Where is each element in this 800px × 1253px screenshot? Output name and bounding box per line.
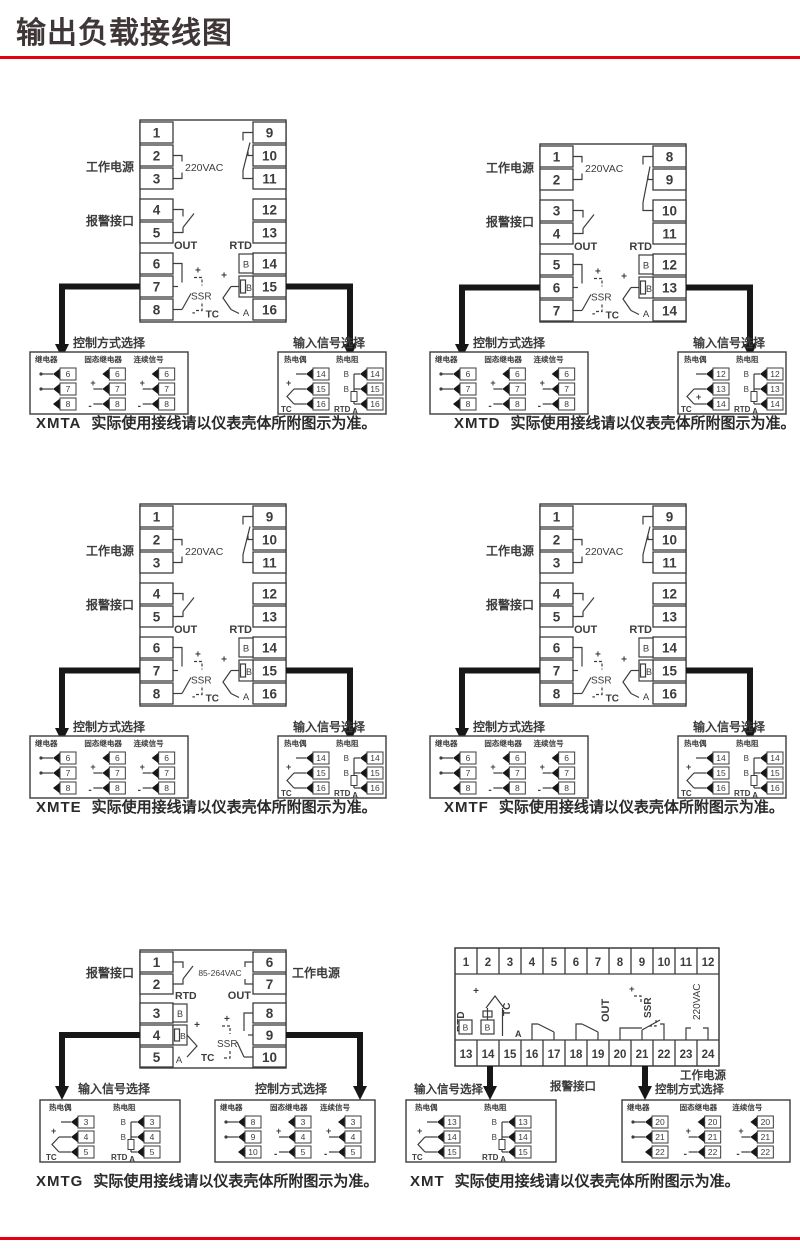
svg-text:+: +: [224, 1014, 230, 1025]
model-label: XMTD: [454, 415, 501, 432]
svg-text:B: B: [246, 667, 252, 677]
svg-text:1: 1: [553, 150, 561, 165]
svg-text:SSR: SSR: [591, 293, 612, 304]
svg-text:报警接口: 报警接口: [86, 965, 134, 980]
svg-text:7: 7: [515, 768, 520, 778]
svg-text:+: +: [90, 762, 95, 772]
svg-text:OUT: OUT: [174, 624, 198, 636]
svg-text:+: +: [490, 762, 495, 772]
svg-text:13: 13: [662, 281, 678, 296]
svg-text:12: 12: [662, 258, 677, 273]
xmtd-wiring-diagram: 1829310411512613714工作电源报警接口220VACOUT+SSR…: [428, 108, 798, 438]
svg-text:15: 15: [662, 664, 678, 679]
svg-text:2: 2: [153, 977, 161, 992]
svg-text:RTD: RTD: [629, 624, 652, 636]
svg-text:16: 16: [316, 783, 326, 793]
svg-text:输入信号选择: 输入信号选择: [78, 1081, 151, 1096]
svg-text:B: B: [243, 644, 249, 655]
svg-text:+: +: [738, 1126, 743, 1136]
svg-text:5: 5: [553, 610, 561, 625]
svg-text:15: 15: [262, 664, 278, 679]
svg-text:热电阻: 热电阻: [736, 738, 759, 748]
svg-text:5: 5: [153, 1050, 161, 1065]
svg-text:6: 6: [515, 369, 520, 379]
svg-text:85-264VAC: 85-264VAC: [198, 968, 241, 978]
xmte-diagram-svg: 19210311412513614715816工作电源报警接口220VACOUT…: [28, 492, 398, 802]
svg-text:13: 13: [518, 1117, 528, 1127]
svg-text:14: 14: [482, 1049, 495, 1061]
svg-text:3: 3: [153, 556, 161, 571]
svg-text:+: +: [286, 762, 291, 772]
svg-text:7: 7: [115, 768, 120, 778]
svg-text:8: 8: [153, 687, 161, 702]
svg-text:11: 11: [662, 556, 677, 571]
svg-text:连续信号: 连续信号: [134, 354, 164, 364]
svg-text:9: 9: [266, 126, 274, 141]
xmtd-caption: XMTD实际使用接线请以仪表壳体所附图示为准。: [454, 412, 796, 433]
svg-text:TC: TC: [606, 694, 619, 705]
svg-text:11: 11: [262, 172, 277, 187]
svg-text:继电器: 继电器: [35, 354, 58, 364]
svg-text:15: 15: [447, 1147, 457, 1157]
svg-text:8: 8: [515, 399, 520, 409]
svg-text:TC: TC: [206, 310, 219, 321]
svg-text:A: A: [129, 1155, 135, 1164]
svg-text:4: 4: [553, 587, 561, 602]
svg-text:2: 2: [553, 533, 561, 548]
xmtd-diagram-svg: 1829310411512613714工作电源报警接口220VACOUT+SSR…: [428, 108, 798, 418]
svg-text:6: 6: [66, 753, 71, 763]
svg-text:14: 14: [370, 753, 380, 763]
svg-text:B: B: [121, 1118, 126, 1127]
svg-text:RTD: RTD: [482, 1153, 499, 1162]
svg-text:TC: TC: [46, 1153, 57, 1162]
svg-text:+: +: [696, 392, 701, 402]
xmta-caption: XMTA实际使用接线请以仪表壳体所附图示为准。: [36, 412, 376, 433]
svg-text:B: B: [344, 769, 349, 778]
svg-text:热电偶: 热电偶: [684, 354, 707, 364]
svg-text:3: 3: [351, 1117, 356, 1127]
svg-text:12: 12: [262, 203, 277, 218]
svg-text:A: A: [515, 1029, 522, 1039]
svg-text:11: 11: [662, 227, 677, 242]
xmtg-wiring-diagram: 16273849510报警接口RTDBBA+TC85-264VAC工作电源OUT…: [28, 940, 398, 1200]
svg-text:3: 3: [507, 957, 513, 969]
svg-text:-: -: [592, 309, 595, 320]
svg-text:22: 22: [761, 1147, 771, 1157]
svg-text:9: 9: [639, 957, 645, 969]
svg-text:B: B: [643, 261, 649, 272]
svg-text:连续信号: 连续信号: [534, 738, 564, 748]
svg-text:8: 8: [564, 783, 569, 793]
model-label: XMTE: [36, 799, 82, 816]
svg-text:8: 8: [66, 783, 71, 793]
svg-text:15: 15: [316, 384, 326, 394]
xmt-wiring-diagram: 113214315416517618719820921102211231224R…: [398, 940, 798, 1200]
svg-text:+: +: [194, 1020, 200, 1031]
svg-text:10: 10: [262, 533, 277, 548]
svg-text:-: -: [736, 1149, 739, 1160]
svg-text:7: 7: [564, 384, 569, 394]
svg-text:23: 23: [680, 1049, 693, 1061]
svg-text:控制方式选择: 控制方式选择: [73, 719, 146, 734]
svg-text:21: 21: [708, 1132, 718, 1142]
svg-text:固态继电器: 固态继电器: [84, 354, 122, 364]
svg-text:工作电源: 工作电源: [292, 965, 340, 980]
svg-text:SSR: SSR: [217, 1039, 238, 1050]
svg-text:1: 1: [153, 126, 161, 141]
svg-text:6: 6: [466, 369, 471, 379]
svg-text:2: 2: [553, 173, 561, 188]
xmt-diagram-svg: 113214315416517618719820921102211231224R…: [398, 940, 798, 1180]
svg-text:15: 15: [770, 768, 780, 778]
svg-text:17: 17: [548, 1049, 561, 1061]
bottom-rule: [0, 1237, 800, 1240]
svg-text:16: 16: [662, 687, 678, 702]
svg-text:输入信号选择: 输入信号选择: [693, 719, 766, 734]
page-title: 输出负载接线图: [16, 8, 233, 52]
svg-text:8: 8: [266, 1006, 274, 1021]
svg-text:6: 6: [466, 753, 471, 763]
svg-text:10: 10: [658, 957, 671, 969]
svg-text:OUT: OUT: [574, 624, 598, 636]
svg-text:固态继电器: 固态继电器: [84, 738, 122, 748]
svg-text:1: 1: [153, 510, 161, 525]
svg-text:16: 16: [370, 783, 380, 793]
svg-text:B: B: [344, 385, 349, 394]
svg-text:+: +: [195, 650, 201, 661]
svg-text:OUT: OUT: [600, 999, 612, 1023]
svg-text:6: 6: [266, 955, 274, 970]
svg-text:5: 5: [153, 610, 161, 625]
svg-text:8: 8: [115, 783, 120, 793]
svg-text:7: 7: [553, 304, 561, 319]
svg-text:20: 20: [761, 1117, 771, 1127]
svg-text:1: 1: [553, 510, 561, 525]
svg-text:控制方式选择: 控制方式选择: [473, 335, 546, 350]
svg-text:8: 8: [515, 783, 520, 793]
svg-text:热电阻: 热电阻: [484, 1102, 507, 1112]
svg-text:6: 6: [66, 369, 71, 379]
svg-text:+: +: [326, 1126, 331, 1136]
svg-text:7: 7: [164, 768, 169, 778]
svg-text:15: 15: [316, 768, 326, 778]
svg-text:工作电源: 工作电源: [486, 160, 534, 175]
svg-text:-: -: [88, 785, 91, 796]
svg-text:3: 3: [553, 204, 561, 219]
svg-text:6: 6: [164, 753, 169, 763]
svg-text:6: 6: [553, 281, 561, 296]
svg-text:14: 14: [770, 399, 780, 409]
svg-text:A: A: [243, 308, 250, 319]
svg-text:12: 12: [702, 957, 715, 969]
svg-text:+: +: [221, 655, 227, 666]
svg-text:控制方式选择: 控制方式选择: [255, 1081, 328, 1096]
svg-text:4: 4: [351, 1132, 356, 1142]
svg-text:热电阻: 热电阻: [336, 738, 359, 748]
svg-text:14: 14: [316, 753, 326, 763]
svg-text:-: -: [274, 1149, 277, 1160]
svg-text:B: B: [744, 370, 749, 379]
xmtf-diagram-svg: 19210311412513614715816工作电源报警接口220VACOUT…: [428, 492, 798, 802]
svg-text:16: 16: [770, 783, 780, 793]
svg-text:2: 2: [153, 533, 161, 548]
svg-text:7: 7: [266, 977, 274, 992]
svg-text:6: 6: [553, 641, 561, 656]
svg-text:TC: TC: [502, 1003, 513, 1016]
svg-text:21: 21: [761, 1132, 771, 1142]
svg-text:控制方式选择: 控制方式选择: [655, 1082, 724, 1096]
svg-text:2: 2: [153, 149, 161, 164]
svg-text:B: B: [492, 1133, 497, 1142]
svg-text:3: 3: [84, 1117, 89, 1127]
svg-text:10: 10: [662, 204, 677, 219]
svg-text:14: 14: [316, 369, 326, 379]
svg-text:8: 8: [466, 783, 471, 793]
svg-text:+: +: [221, 271, 227, 282]
svg-text:热电偶: 热电偶: [684, 738, 707, 748]
svg-text:-: -: [192, 692, 195, 703]
svg-text:B: B: [177, 1009, 183, 1019]
svg-text:B: B: [643, 644, 649, 655]
svg-text:14: 14: [662, 304, 678, 319]
svg-text:14: 14: [262, 641, 278, 656]
svg-text:SSR: SSR: [191, 676, 212, 687]
svg-text:B: B: [646, 284, 652, 294]
svg-text:RTD: RTD: [175, 990, 197, 1002]
svg-text:+: +: [140, 762, 145, 772]
caption-text: 实际使用接线请以仪表壳体所附图示为准。: [455, 1173, 740, 1190]
svg-text:固态继电器: 固态继电器: [270, 1102, 308, 1112]
svg-text:7: 7: [153, 664, 161, 679]
svg-text:-: -: [88, 401, 91, 412]
svg-text:B: B: [344, 370, 349, 379]
svg-text:15: 15: [370, 384, 380, 394]
svg-text:报警接口: 报警接口: [86, 213, 134, 228]
svg-text:RTD: RTD: [229, 624, 252, 636]
svg-text:A: A: [643, 692, 650, 703]
svg-text:-: -: [592, 692, 595, 703]
svg-text:22: 22: [658, 1049, 671, 1061]
svg-text:4: 4: [84, 1132, 89, 1142]
svg-text:输入信号选择: 输入信号选择: [293, 719, 366, 734]
svg-text:14: 14: [518, 1132, 528, 1142]
svg-text:10: 10: [248, 1147, 258, 1157]
svg-text:输入信号选择: 输入信号选择: [293, 335, 366, 350]
svg-text:220VAC: 220VAC: [185, 546, 224, 558]
svg-text:B: B: [243, 260, 249, 271]
svg-text:热电偶: 热电偶: [49, 1102, 72, 1112]
svg-text:6: 6: [153, 257, 161, 272]
svg-text:B: B: [463, 1023, 469, 1033]
svg-text:热电阻: 热电阻: [336, 354, 359, 364]
svg-text:-: -: [538, 401, 541, 412]
svg-text:21: 21: [655, 1132, 665, 1142]
svg-text:A: A: [176, 1055, 183, 1066]
xmte-wiring-diagram: 19210311412513614715816工作电源报警接口220VACOUT…: [28, 492, 398, 822]
svg-text:+: +: [595, 650, 601, 661]
svg-text:16: 16: [316, 399, 326, 409]
svg-text:输入信号选择: 输入信号选择: [414, 1082, 483, 1096]
xmt-caption: XMT实际使用接线请以仪表壳体所附图示为准。: [410, 1170, 740, 1191]
svg-text:10: 10: [662, 533, 677, 548]
svg-text:8: 8: [66, 399, 71, 409]
svg-text:5: 5: [351, 1147, 356, 1157]
svg-text:4: 4: [153, 203, 161, 218]
svg-text:A: A: [643, 309, 650, 320]
svg-text:B: B: [121, 1133, 126, 1142]
svg-text:2: 2: [485, 957, 491, 969]
svg-text:+: +: [686, 762, 691, 772]
svg-text:固态继电器: 固态继电器: [484, 738, 522, 748]
svg-text:14: 14: [770, 753, 780, 763]
svg-text:连续信号: 连续信号: [534, 354, 564, 364]
svg-text:输入信号选择: 输入信号选择: [693, 335, 766, 350]
svg-text:12: 12: [716, 369, 726, 379]
svg-text:5: 5: [551, 957, 558, 969]
svg-text:8: 8: [564, 399, 569, 409]
svg-text:6: 6: [115, 369, 120, 379]
svg-text:4: 4: [553, 227, 561, 242]
xmta-wiring-diagram: 19210311412513614715816工作电源报警接口220VACOUT…: [28, 108, 398, 438]
svg-text:13: 13: [460, 1049, 473, 1061]
svg-text:OUT: OUT: [574, 241, 598, 253]
svg-text:连续信号: 连续信号: [732, 1102, 762, 1112]
svg-text:7: 7: [564, 768, 569, 778]
svg-text:+: +: [540, 762, 545, 772]
svg-text:B: B: [492, 1118, 497, 1127]
svg-text:220VAC: 220VAC: [185, 162, 224, 174]
svg-text:A: A: [243, 692, 250, 703]
svg-text:4: 4: [153, 587, 161, 602]
svg-text:9: 9: [266, 510, 274, 525]
svg-text:11: 11: [680, 957, 693, 969]
svg-text:9: 9: [666, 510, 674, 525]
svg-text:15: 15: [716, 768, 726, 778]
svg-text:3: 3: [153, 172, 161, 187]
svg-text:热电偶: 热电偶: [284, 738, 307, 748]
svg-text:13: 13: [770, 384, 780, 394]
svg-text:9: 9: [266, 1028, 274, 1043]
svg-text:+: +: [595, 267, 601, 278]
svg-text:8: 8: [115, 399, 120, 409]
svg-text:+: +: [276, 1126, 281, 1136]
svg-text:7: 7: [164, 384, 169, 394]
svg-text:+: +: [473, 986, 479, 997]
svg-text:继电器: 继电器: [35, 738, 58, 748]
svg-text:-: -: [324, 1149, 327, 1160]
caption-text: 实际使用接线请以仪表壳体所附图示为准。: [91, 415, 376, 432]
svg-text:6: 6: [564, 753, 569, 763]
svg-text:+: +: [51, 1126, 56, 1136]
svg-text:控制方式选择: 控制方式选择: [73, 335, 146, 350]
svg-text:6: 6: [564, 369, 569, 379]
svg-text:14: 14: [370, 369, 380, 379]
svg-text:报警接口: 报警接口: [486, 214, 534, 229]
svg-text:工作电源: 工作电源: [680, 1068, 726, 1082]
svg-text:B: B: [744, 754, 749, 763]
svg-text:继电器: 继电器: [435, 738, 458, 748]
svg-text:15: 15: [518, 1147, 528, 1157]
svg-text:4: 4: [529, 957, 536, 969]
svg-text:13: 13: [262, 226, 278, 241]
svg-text:16: 16: [370, 399, 380, 409]
svg-text:6: 6: [573, 957, 579, 969]
svg-text:12: 12: [262, 587, 277, 602]
svg-text:4: 4: [153, 1028, 161, 1043]
svg-text:TC: TC: [206, 694, 219, 705]
svg-text:B: B: [744, 385, 749, 394]
svg-text:5: 5: [153, 226, 161, 241]
svg-text:7: 7: [553, 664, 561, 679]
svg-text:B: B: [344, 754, 349, 763]
svg-text:工作电源: 工作电源: [86, 543, 134, 558]
xmtf-wiring-diagram: 19210311412513614715816工作电源报警接口220VACOUT…: [428, 492, 798, 822]
svg-text:B: B: [246, 283, 252, 293]
svg-text:-: -: [138, 785, 141, 796]
svg-text:+: +: [417, 1126, 422, 1136]
svg-text:A: A: [500, 1155, 506, 1164]
svg-text:热电阻: 热电阻: [736, 354, 759, 364]
svg-text:14: 14: [262, 257, 278, 272]
svg-text:+: +: [629, 984, 635, 995]
xmtf-caption: XMTF实际使用接线请以仪表壳体所附图示为准。: [444, 796, 784, 817]
svg-text:报警接口: 报警接口: [486, 597, 534, 612]
svg-text:9: 9: [666, 173, 674, 188]
svg-text:连续信号: 连续信号: [320, 1102, 350, 1112]
svg-text:B: B: [744, 769, 749, 778]
caption-text: 实际使用接线请以仪表壳体所附图示为准。: [93, 1173, 378, 1190]
svg-text:固态继电器: 固态继电器: [680, 1102, 718, 1112]
svg-text:20: 20: [708, 1117, 718, 1127]
svg-text:+: +: [540, 378, 545, 388]
svg-text:20: 20: [655, 1117, 665, 1127]
svg-text:5: 5: [84, 1147, 89, 1157]
model-label: XMTF: [444, 799, 489, 816]
svg-text:B: B: [646, 667, 652, 677]
svg-text:-: -: [538, 785, 541, 796]
svg-text:SSR: SSR: [191, 292, 212, 303]
svg-text:14: 14: [716, 753, 726, 763]
svg-text:15: 15: [262, 280, 278, 295]
svg-text:连续信号: 连续信号: [134, 738, 164, 748]
svg-text:13: 13: [662, 610, 678, 625]
svg-text:SSR: SSR: [643, 997, 654, 1018]
svg-text:B: B: [485, 1023, 491, 1033]
svg-text:报警接口: 报警接口: [86, 597, 134, 612]
svg-text:OUT: OUT: [174, 240, 198, 252]
svg-text:13: 13: [716, 384, 726, 394]
svg-text:7: 7: [153, 280, 161, 295]
svg-text:TC: TC: [606, 311, 619, 322]
svg-text:-: -: [684, 1149, 687, 1160]
svg-text:RTD: RTD: [629, 241, 652, 253]
svg-text:+: +: [195, 266, 201, 277]
svg-text:7: 7: [466, 384, 471, 394]
svg-text:18: 18: [570, 1049, 583, 1061]
svg-text:热电阻: 热电阻: [113, 1102, 136, 1112]
svg-text:16: 16: [262, 303, 278, 318]
svg-text:+: +: [286, 378, 291, 388]
svg-text:13: 13: [447, 1117, 457, 1127]
svg-text:15: 15: [504, 1049, 517, 1061]
svg-text:8: 8: [164, 783, 169, 793]
svg-text:7: 7: [66, 768, 71, 778]
xmte-caption: XMTE实际使用接线请以仪表壳体所附图示为准。: [36, 796, 377, 817]
svg-text:+: +: [140, 378, 145, 388]
svg-text:+: +: [686, 1126, 691, 1136]
svg-text:工作电源: 工作电源: [486, 543, 534, 558]
